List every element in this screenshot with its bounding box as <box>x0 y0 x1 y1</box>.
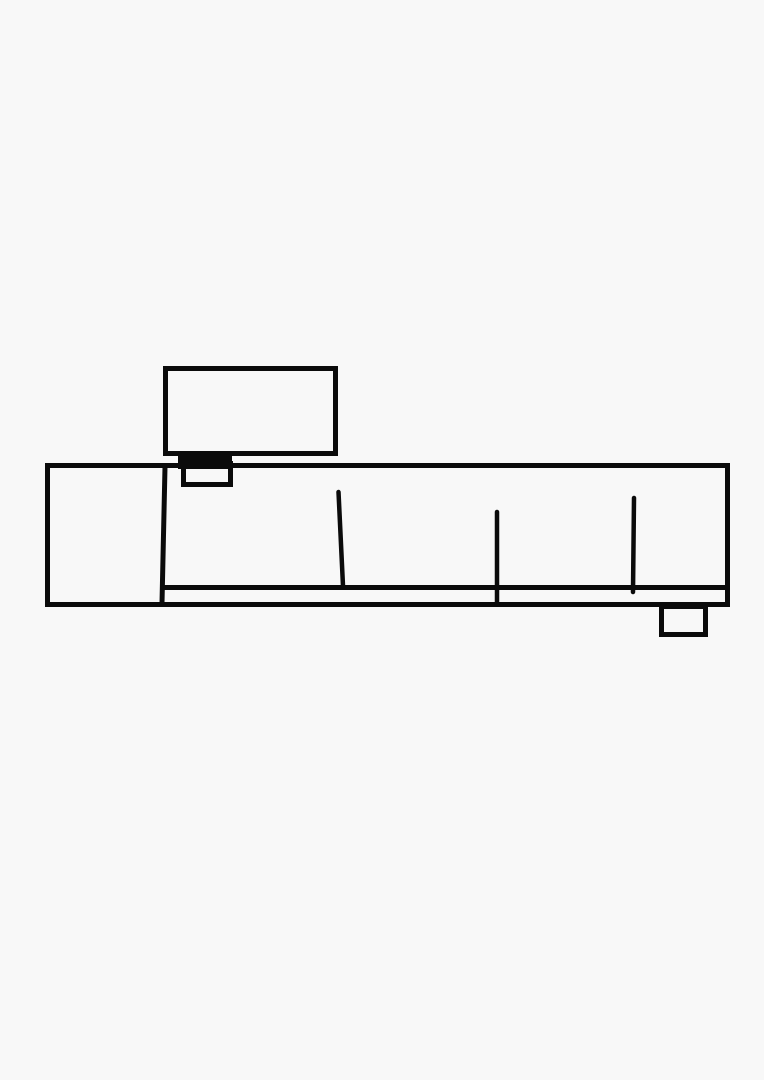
console-seam-3 <box>633 498 634 592</box>
console-outline <box>48 466 728 605</box>
tv-screen-outline <box>166 369 336 454</box>
sketch-page <box>0 0 764 1080</box>
furniture-sketch-canvas <box>0 0 764 1080</box>
console-left-divider <box>162 467 165 603</box>
console-right-foot-outline <box>662 607 706 635</box>
console-seam-1 <box>339 492 344 586</box>
